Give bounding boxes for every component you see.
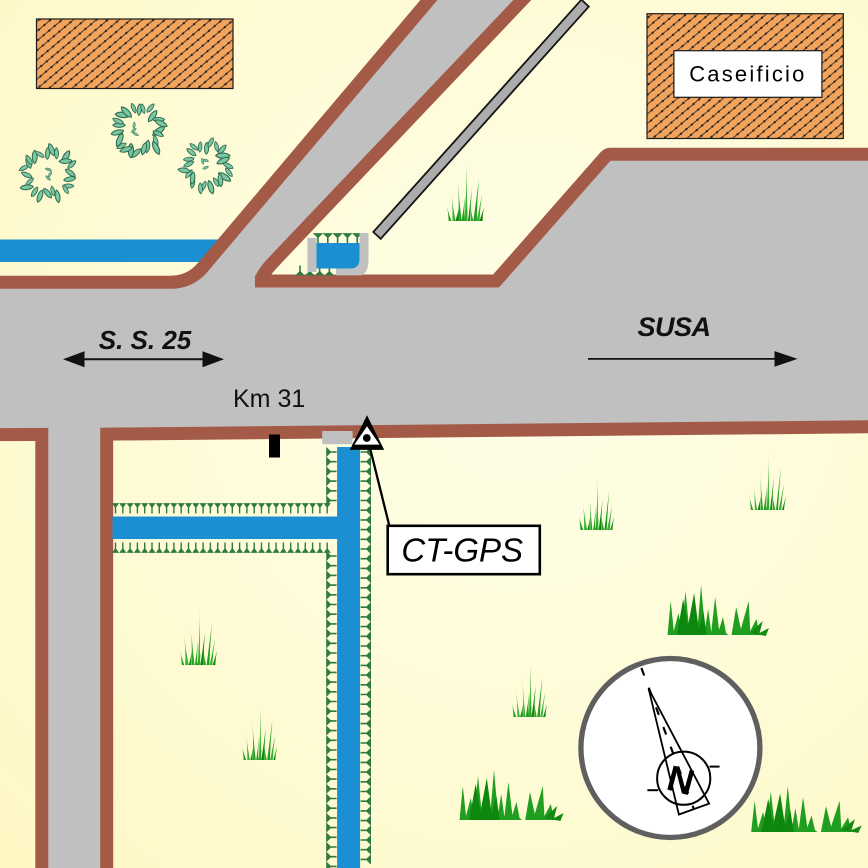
svg-text:Km 31: Km 31 — [233, 385, 305, 413]
svg-text:CT-GPS: CT-GPS — [401, 531, 523, 568]
svg-text:Caseificio: Caseificio — [689, 62, 806, 87]
svg-text:SUSA: SUSA — [637, 312, 710, 342]
svg-text:S. S. 25: S. S. 25 — [99, 325, 192, 355]
